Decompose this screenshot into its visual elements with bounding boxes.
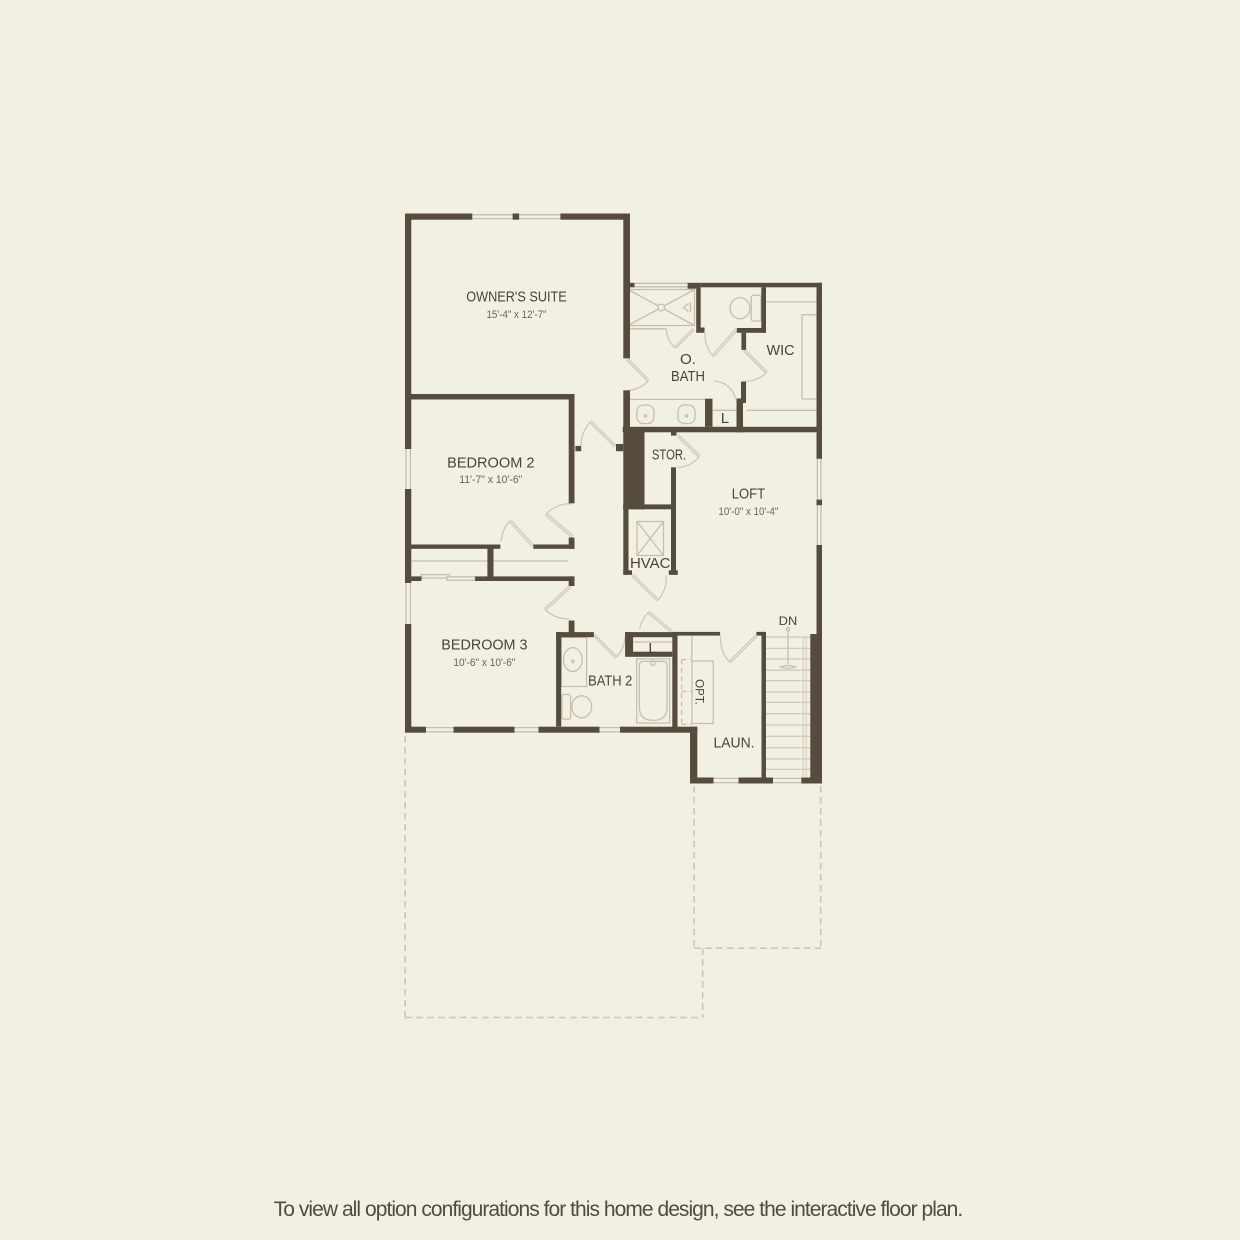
- svg-text:OPT.: OPT.: [693, 679, 707, 705]
- svg-text:O.: O.: [680, 351, 696, 368]
- svg-text:STOR.: STOR.: [652, 447, 686, 464]
- svg-text:To view all option configurati: To view all option configurations for th…: [274, 1198, 964, 1221]
- svg-text:LOFT: LOFT: [732, 486, 765, 503]
- svg-text:BEDROOM 3: BEDROOM 3: [441, 636, 527, 653]
- svg-text:15'-4" x 12'-7": 15'-4" x 12'-7": [487, 309, 547, 321]
- svg-text:BATH: BATH: [671, 368, 705, 385]
- svg-text:DN: DN: [779, 616, 798, 628]
- svg-text:HVAC: HVAC: [630, 555, 671, 572]
- svg-text:BEDROOM 2: BEDROOM 2: [447, 454, 534, 471]
- svg-text:L: L: [721, 410, 729, 427]
- svg-text:LAUN.: LAUN.: [713, 734, 754, 751]
- svg-text:11'-7" x 10'-6": 11'-7" x 10'-6": [459, 474, 522, 486]
- svg-text:10'-6" x 10'-6": 10'-6" x 10'-6": [453, 657, 515, 669]
- svg-text:10'-0" x 10'-4": 10'-0" x 10'-4": [718, 506, 778, 518]
- svg-text:WIC: WIC: [766, 342, 794, 359]
- svg-text:OWNER'S SUITE: OWNER'S SUITE: [466, 289, 567, 306]
- svg-text:L: L: [648, 640, 656, 657]
- svg-text:BATH 2: BATH 2: [588, 673, 632, 690]
